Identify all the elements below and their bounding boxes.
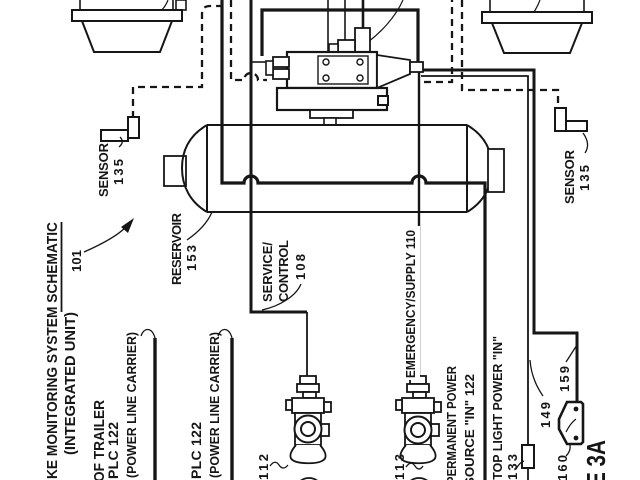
- coupling-emergency-ref: 113: [392, 454, 407, 480]
- schematic-title: KE MONITORING SYSTEM SCHEMATIC: [44, 222, 61, 479]
- sensor-right-icon: [555, 108, 587, 131]
- sensor-right-label: SENSOR: [562, 149, 577, 204]
- leader-153: [187, 212, 212, 240]
- brake-chamber-right-icon: [482, 0, 592, 53]
- reservoir-tank-icon: [164, 125, 504, 212]
- arrowhead-101: [121, 218, 134, 233]
- ref-101: 101: [69, 250, 84, 272]
- stoplight-plug-icon: [559, 402, 583, 444]
- permanent-power-1: PERMANENT POWER: [444, 365, 459, 480]
- plc-right-desc: (POWER LINE CARRIER): [207, 332, 222, 478]
- service-ref: 108: [293, 254, 308, 280]
- stop-light-ref-133: 133: [505, 454, 520, 480]
- stop-light-label: STOP LIGHT POWER "IN": [490, 336, 505, 480]
- service-label-1: SERVICE/: [260, 242, 275, 302]
- patent-schematic-page: KE MONITORING SYSTEM SCHEMATIC (INTEGRAT…: [0, 0, 640, 480]
- schematic-subtitle: (INTEGRATED UNIT): [62, 312, 79, 455]
- leader-plc-left: [141, 329, 155, 338]
- plug-ref-160: 160: [555, 455, 570, 480]
- brake-chamber-left-icon: [72, 0, 186, 52]
- leader-112: [270, 462, 288, 468]
- coupling-service-ref: 112: [256, 454, 271, 480]
- plc-left-desc: (POWER LINE CARRIER): [124, 332, 139, 478]
- service-label-2: CONTROL: [276, 240, 291, 302]
- sensor-left-ref: 135: [111, 159, 126, 185]
- sensor-left-label: SENSOR: [96, 142, 111, 197]
- leader-135-right: [583, 133, 588, 153]
- reservoir-label: RESERVOIR: [169, 212, 184, 285]
- plug-wire-ref-159: 159: [557, 366, 572, 392]
- stoplight-connector-icon: [522, 445, 534, 468]
- brake-monitoring-schematic: KE MONITORING SYSTEM SCHEMATIC (INTEGRAT…: [0, 0, 640, 480]
- stop-light-ref-149: 149: [538, 402, 553, 428]
- leader-149: [530, 360, 543, 396]
- permanent-power-2: SOURCE "IN" 122: [462, 374, 477, 480]
- leader-101: [84, 227, 126, 252]
- sensor-right-ref: 135: [577, 165, 592, 191]
- leader-159: [566, 345, 577, 362]
- figure-label: E 3A: [581, 440, 611, 480]
- emergency-label: EMERGENCY/SUPPLY 110: [403, 230, 418, 378]
- leader-160: [566, 445, 570, 456]
- reservoir-ref: 153: [184, 245, 199, 271]
- plc-left-name: PLC 122: [105, 422, 121, 479]
- plc-right-name: PLC 122: [188, 422, 204, 479]
- gladhand-service-icon: [286, 376, 331, 480]
